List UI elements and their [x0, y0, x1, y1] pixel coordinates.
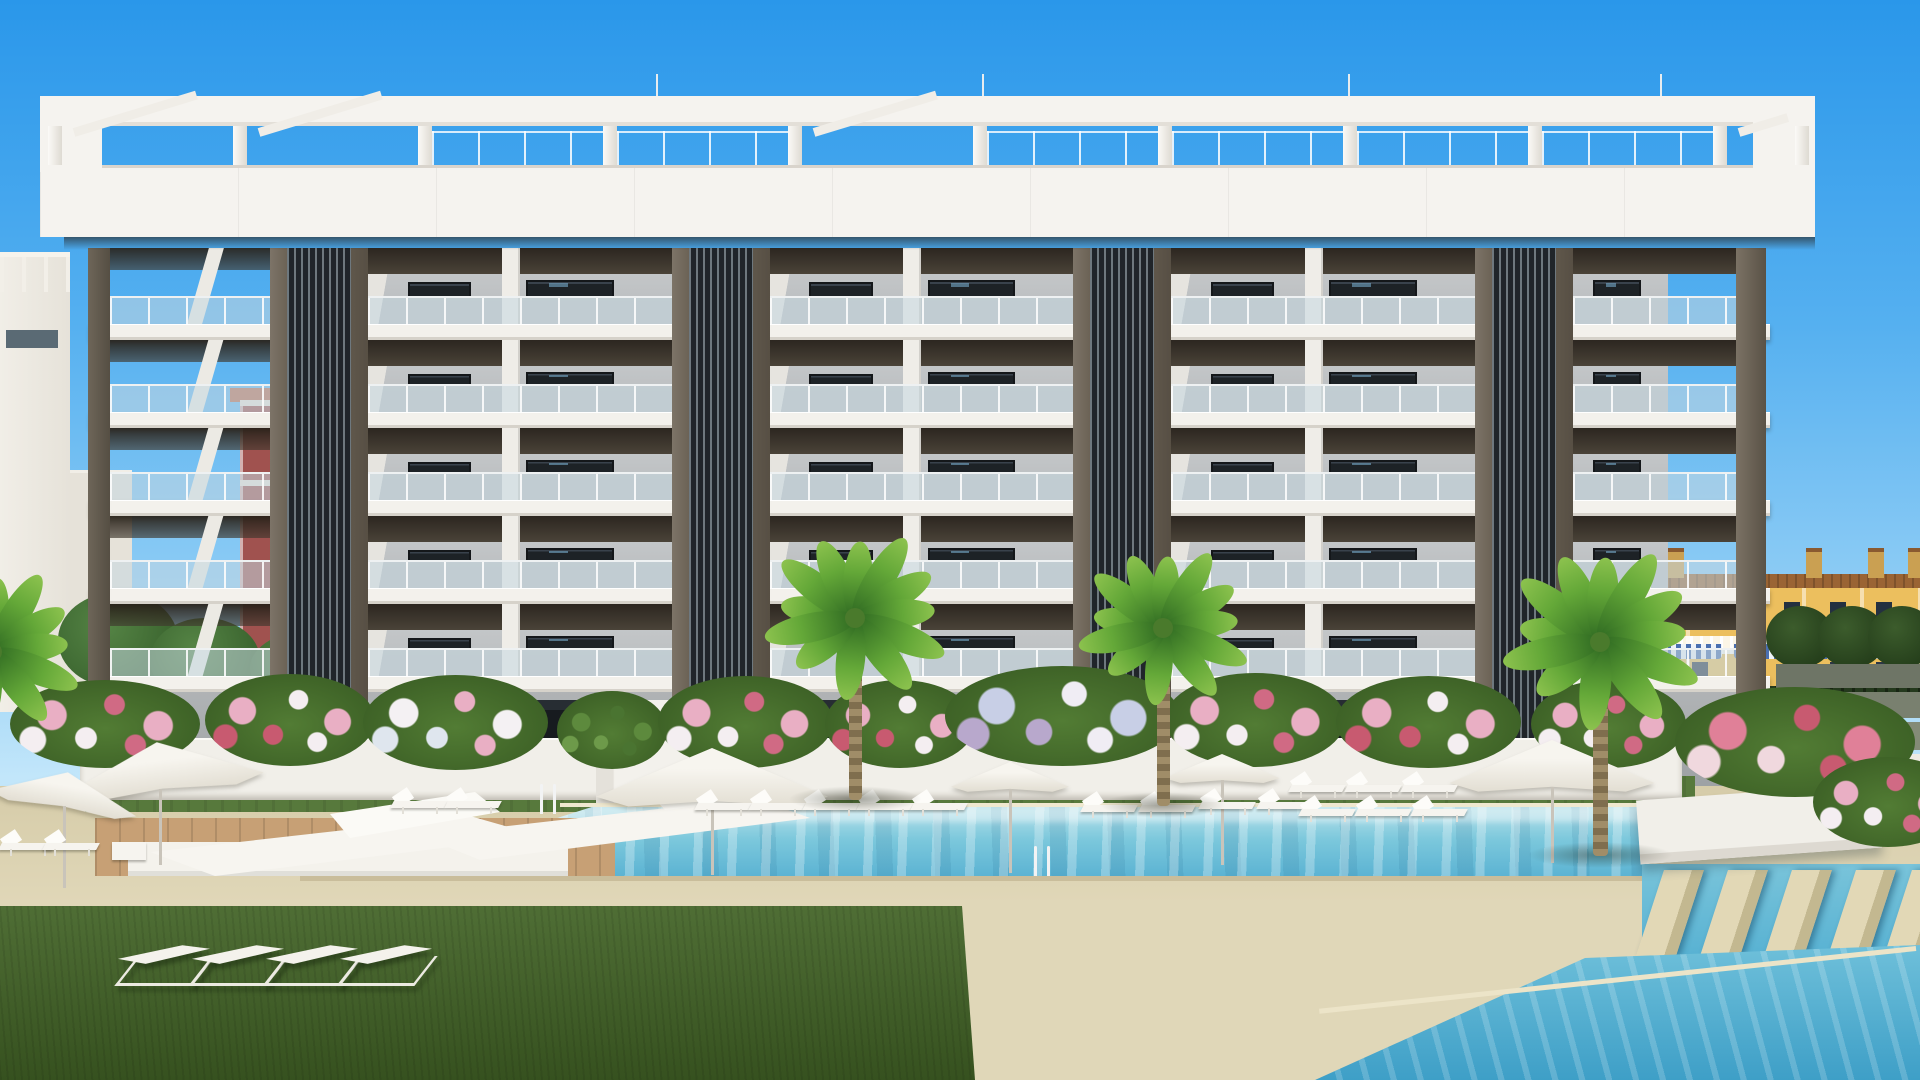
- sun-lounger: [392, 788, 446, 814]
- lounger-seat: [1344, 785, 1402, 792]
- lounger-leg: [1092, 811, 1094, 818]
- garden-layer: [0, 0, 1920, 1080]
- sun-lounger: [1290, 772, 1344, 798]
- lounger-leg: [1400, 815, 1402, 822]
- lounger-seat: [444, 801, 502, 808]
- lawn-lounger: [340, 938, 432, 990]
- palm-crown-core: [845, 608, 865, 628]
- lounger-leg: [706, 809, 708, 816]
- pool-ladder: [1032, 846, 1054, 876]
- terraced-hedge: [1776, 664, 1920, 688]
- lounger-leg: [10, 849, 12, 856]
- sun-lounger: [1356, 796, 1410, 822]
- lounger-leg: [1366, 815, 1368, 822]
- lounger-seat: [694, 803, 752, 810]
- sun-lounger: [446, 788, 500, 814]
- lounger-seat: [1288, 785, 1346, 792]
- sun-lounger: [1412, 796, 1466, 822]
- sun-lounger: [1402, 772, 1456, 798]
- lounger-leg: [88, 849, 90, 856]
- lounger-seat: [1298, 809, 1356, 816]
- pool-ladder: [538, 784, 560, 814]
- lounger-leg: [490, 807, 492, 814]
- lounger-leg: [1422, 815, 1424, 822]
- parasol-pole: [1009, 789, 1012, 873]
- palm-crown-core: [1590, 632, 1610, 652]
- flower-bush: [1165, 673, 1345, 767]
- lounger-seat: [1354, 809, 1412, 816]
- lounger-leg: [956, 809, 958, 816]
- lounger-leg: [402, 807, 404, 814]
- lounger-leg: [54, 849, 56, 856]
- sun-lounger: [1300, 796, 1354, 822]
- palm-crown-core: [1153, 618, 1173, 638]
- flower-bush: [363, 675, 548, 770]
- lounger-seat: [42, 843, 100, 850]
- lounger-seat: [1400, 785, 1458, 792]
- parasol-pole: [159, 789, 162, 866]
- lounger-leg: [1310, 815, 1312, 822]
- lounger-leg: [456, 807, 458, 814]
- lounger-leg: [1456, 815, 1458, 822]
- lounger-seat: [1410, 809, 1468, 816]
- lounger-leg: [1244, 808, 1246, 815]
- lounger-leg: [740, 809, 742, 816]
- sun-lounger: [1346, 772, 1400, 798]
- sun-lounger: [44, 830, 98, 856]
- lounger-leg: [436, 807, 438, 814]
- sun-lounger: [696, 790, 750, 816]
- lounger-leg: [922, 809, 924, 816]
- scene-stage: [0, 0, 1920, 1080]
- lounger-seat: [390, 801, 448, 808]
- lounger-leg: [1344, 815, 1346, 822]
- lounger-leg: [1268, 808, 1270, 815]
- lounger-leg: [760, 809, 762, 816]
